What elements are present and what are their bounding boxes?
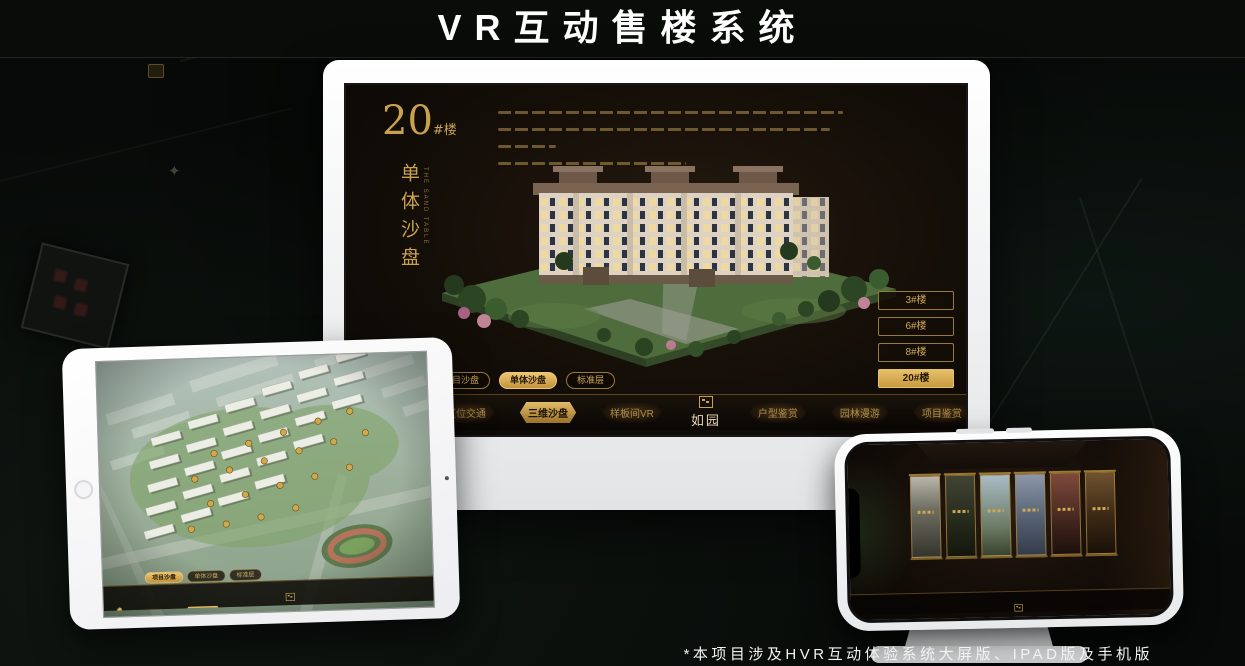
nav-item-floorplan[interactable]: 户型鉴赏	[746, 402, 810, 423]
tab-standard-floor[interactable]: 标准层	[229, 569, 262, 581]
nav-item-showroom-vr[interactable]: 样板间VR	[967, 614, 1008, 616]
unit-subtitle-en: THE SAND TABLE	[422, 167, 428, 245]
panel-caption	[1093, 507, 1109, 510]
nav-item-garden-tour[interactable]: 园林漫游	[828, 402, 892, 423]
scene-panel[interactable]	[980, 474, 1012, 557]
panel-caption	[988, 509, 1004, 512]
tablet-device: 项目沙盘 单体沙盘 标准层 区位交通 三维沙盘 样板间VR 如园 户型鉴赏 园林…	[62, 337, 461, 630]
phone-power-button[interactable]	[1006, 427, 1032, 433]
floor-button-group: 3#楼 6#楼 8#楼 20#楼	[878, 291, 954, 388]
header-band: VR互动售楼系统	[0, 0, 1245, 58]
project-logo: 如园	[684, 396, 728, 429]
tablet-home-button[interactable]	[74, 479, 94, 499]
scene-panel[interactable]	[1050, 473, 1082, 556]
panel-caption	[918, 511, 934, 514]
seal-icon	[1014, 604, 1023, 611]
tab-standard-floor[interactable]: 标准层	[566, 372, 615, 389]
scene-panel-gallery	[910, 472, 1117, 558]
footer-note: *本项目涉及HVR互动体验系统大屏版、IPAD版及手机版	[684, 643, 1153, 664]
unit-number: 20	[382, 98, 433, 144]
nav-item-project-view[interactable]: 项目鉴赏	[910, 402, 968, 423]
floor-button-6[interactable]: 6#楼	[878, 317, 954, 336]
page-title: VR互动售楼系统	[0, 0, 1245, 56]
page: ✦ VR互动售楼系统 20#楼 单体沙盘 THE SAND TABLE	[0, 0, 1245, 666]
building-model-3d[interactable]	[434, 151, 904, 373]
description-text-line	[498, 111, 843, 114]
scene-panel[interactable]	[945, 475, 977, 558]
unit-subtitle: 单体沙盘	[396, 163, 423, 323]
seal-icon	[286, 593, 295, 601]
tablet-screen: 项目沙盘 单体沙盘 标准层 区位交通 三维沙盘 样板间VR 如园 户型鉴赏 园林…	[95, 351, 435, 618]
compass-star-icon: ✦	[168, 162, 181, 180]
scene-panel[interactable]	[910, 475, 942, 558]
phone-screen: 区位交通 三维沙盘 样板间VR 如园 户型鉴赏 园林漫游 项目鉴赏	[844, 436, 1174, 624]
desktop-sub-tabs: 项目沙盘 单体沙盘 标准层	[432, 372, 615, 389]
seal-icon	[699, 396, 713, 408]
phone-volume-button[interactable]	[956, 428, 994, 434]
description-text-line	[498, 128, 830, 131]
nav-item-3d-sandtable[interactable]: 三维沙盘	[922, 615, 961, 616]
tablet-camera	[445, 476, 449, 480]
floor-button-3[interactable]: 3#楼	[878, 291, 954, 310]
desktop-navbar-items: 区位交通 三维沙盘 样板间VR 如园 户型鉴赏 园林漫游 项目鉴赏	[434, 396, 968, 429]
nav-item-3d-sandtable[interactable]: 三维沙盘	[516, 402, 580, 423]
scene-panel[interactable]	[1085, 472, 1117, 555]
project-logo-text: 如园	[684, 410, 728, 429]
scene-panel[interactable]	[1015, 473, 1047, 556]
phone-notch	[845, 488, 861, 578]
tab-single-sandtable[interactable]: 单体沙盘	[187, 570, 226, 582]
plaque-seal-marks	[45, 269, 102, 323]
description-text-line	[498, 145, 556, 148]
nav-item-floorplan[interactable]: 户型鉴赏	[1030, 612, 1069, 615]
tab-project-sandtable[interactable]: 项目沙盘	[145, 571, 184, 583]
floor-button-20[interactable]: 20#楼	[878, 369, 954, 388]
unit-suffix: #楼	[433, 123, 457, 138]
panel-caption	[1058, 508, 1074, 511]
phone-device: 区位交通 三维沙盘 样板间VR 如园 户型鉴赏 园林漫游 项目鉴赏	[834, 427, 1184, 631]
scroll-menu-icon[interactable]	[106, 607, 122, 610]
project-logo-text: 如园	[1014, 613, 1024, 616]
background-logo-mark	[148, 64, 164, 78]
project-logo: 如园	[1014, 604, 1024, 615]
unit-title-block: 20#楼	[382, 101, 457, 141]
tab-single-sandtable[interactable]: 单体沙盘	[499, 372, 557, 389]
nav-item-showroom-vr[interactable]: 样板间VR	[598, 402, 666, 423]
interior-ceiling-beam	[917, 440, 1088, 470]
floor-button-8[interactable]: 8#楼	[878, 343, 954, 362]
panel-caption	[1023, 508, 1039, 511]
panel-caption	[953, 510, 969, 513]
